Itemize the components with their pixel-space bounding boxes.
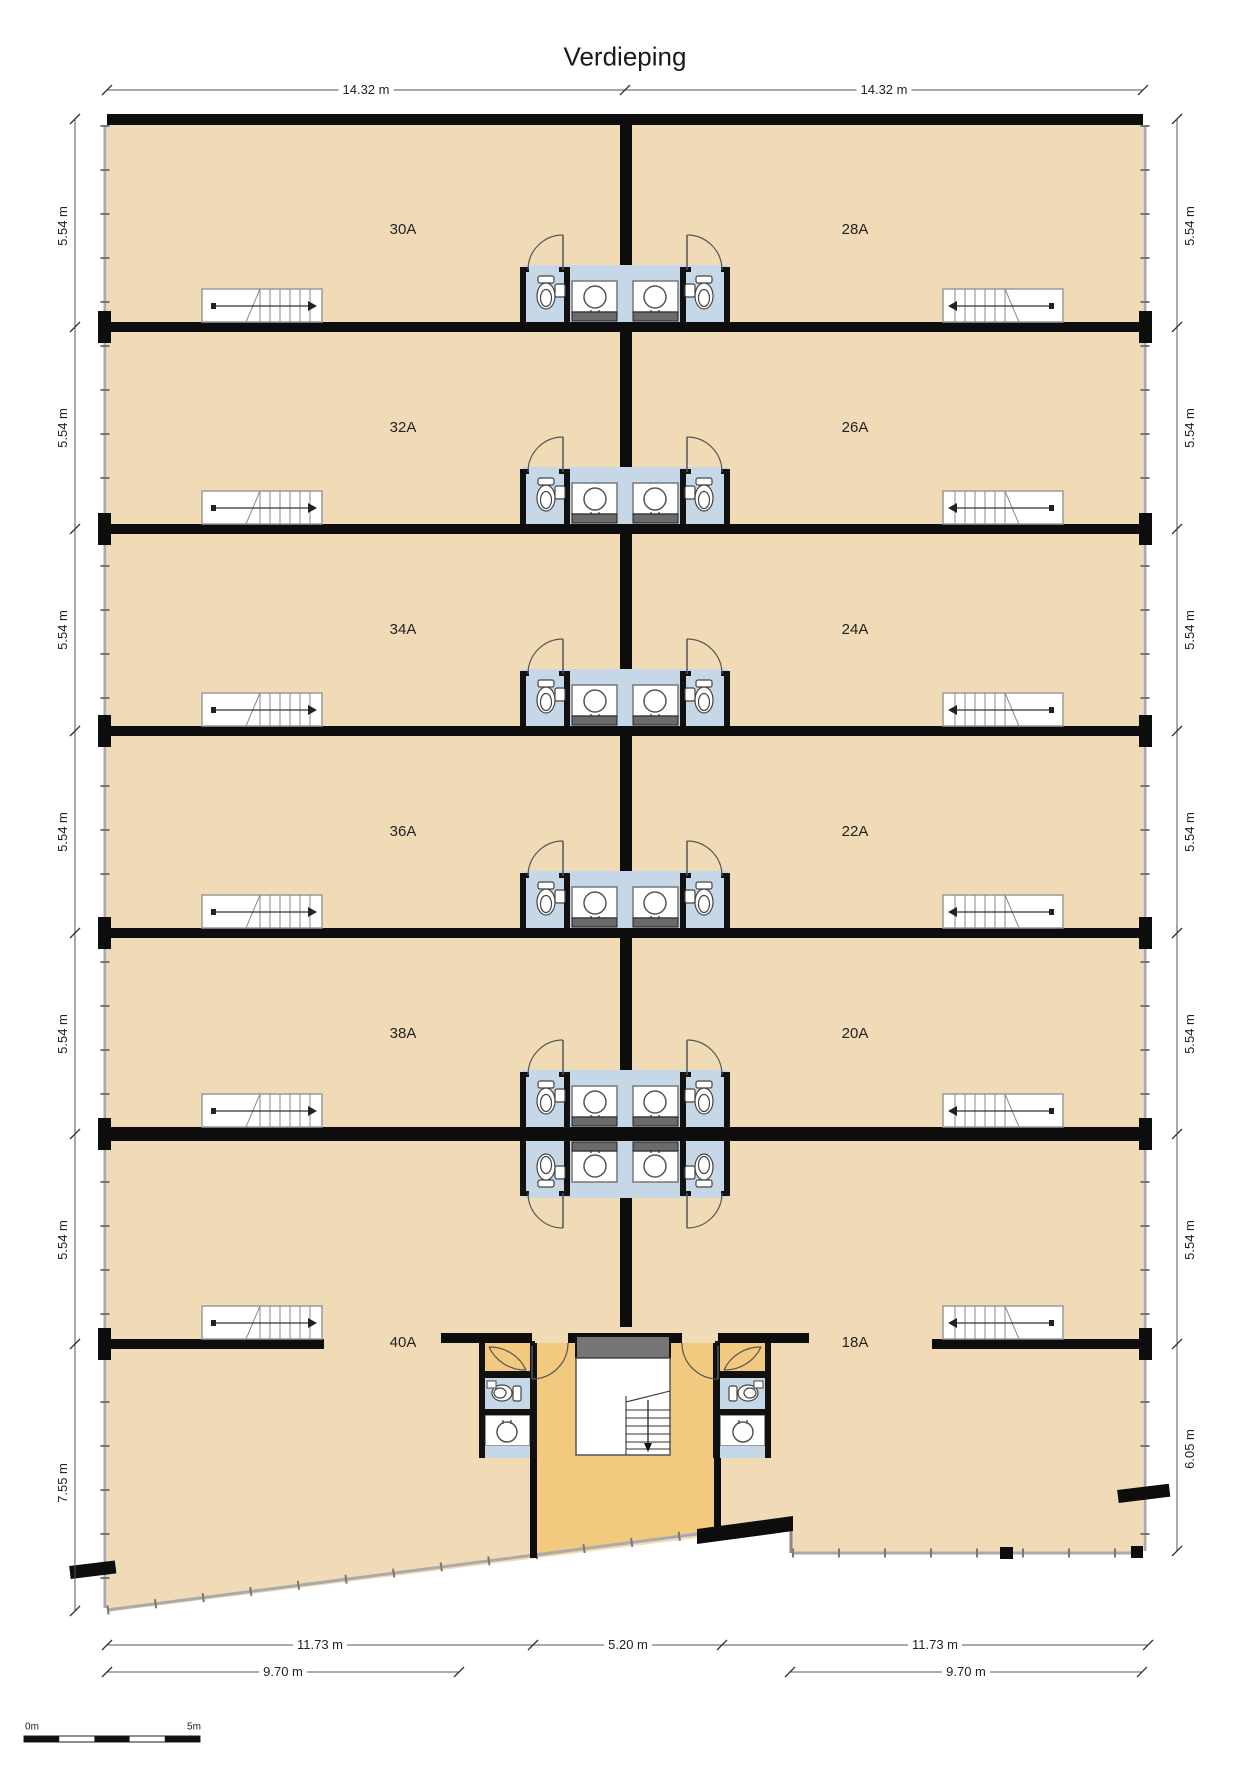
floor-plan-drawing	[0, 0, 1250, 1769]
dim-right-2: 5.54 m	[1183, 404, 1197, 452]
room-label: 24A	[842, 622, 869, 639]
dim-bottom-outer-left: 9.70 m	[259, 1665, 307, 1679]
stairs-icon	[202, 693, 322, 726]
room-label: 40A	[390, 1335, 417, 1352]
stairs-icon	[943, 289, 1063, 322]
room-label: 34A	[390, 622, 417, 639]
stairs-icon	[202, 1094, 322, 1127]
room-label: 20A	[842, 1026, 869, 1043]
stairs-icon	[943, 1306, 1063, 1339]
stairs-icon	[202, 289, 322, 322]
dim-top-left: 14.32 m	[339, 83, 394, 97]
dim-bottom-left: 11.73 m	[293, 1638, 347, 1652]
page-title: Verdieping	[564, 42, 687, 73]
scale-bar	[24, 1736, 200, 1742]
stairs-icon	[202, 1306, 322, 1339]
dim-bottom-right: 11.73 m	[908, 1638, 962, 1652]
dim-left-7: 7.55 m	[56, 1459, 70, 1507]
dim-right-3: 5.54 m	[1183, 606, 1197, 654]
dim-left-5: 5.54 m	[56, 1010, 70, 1058]
stairwell-block	[479, 1336, 771, 1458]
room-label: 36A	[390, 824, 417, 841]
floor-plan: Verdieping 14.32 m 14.32 m 5.54 m 5.54 m…	[0, 0, 1250, 1769]
dim-bottom-center: 5.20 m	[604, 1638, 652, 1652]
room-label: 18A	[842, 1335, 869, 1352]
dim-top-right: 14.32 m	[857, 83, 912, 97]
stair-core	[576, 1358, 670, 1455]
stairs-icon	[202, 895, 322, 928]
dim-left-6: 5.54 m	[56, 1216, 70, 1264]
room-label: 22A	[842, 824, 869, 841]
stairs-icon	[202, 491, 322, 524]
elevator-header	[576, 1336, 670, 1358]
dim-right-7: 6.05 m	[1183, 1425, 1197, 1473]
dim-right-6: 5.54 m	[1183, 1216, 1197, 1264]
room-label: 30A	[390, 222, 417, 239]
scale-end-label: 5m	[187, 1722, 201, 1733]
dim-left-2: 5.54 m	[56, 404, 70, 452]
dim-right-4: 5.54 m	[1183, 808, 1197, 856]
scale-start-label: 0m	[25, 1722, 39, 1733]
stairs-icon	[943, 693, 1063, 726]
stairs-icon	[943, 491, 1063, 524]
dim-bottom-outer-right: 9.70 m	[942, 1665, 990, 1679]
stairs-icon	[943, 1094, 1063, 1127]
stairs-icon	[943, 895, 1063, 928]
dim-left-3: 5.54 m	[56, 606, 70, 654]
dim-right-1: 5.54 m	[1183, 202, 1197, 250]
dim-right-5: 5.54 m	[1183, 1010, 1197, 1058]
room-label: 32A	[390, 420, 417, 437]
dim-left-1: 5.54 m	[56, 202, 70, 250]
room-label: 38A	[390, 1026, 417, 1043]
dim-left-4: 5.54 m	[56, 808, 70, 856]
room-label: 26A	[842, 420, 869, 437]
room-label: 28A	[842, 222, 869, 239]
